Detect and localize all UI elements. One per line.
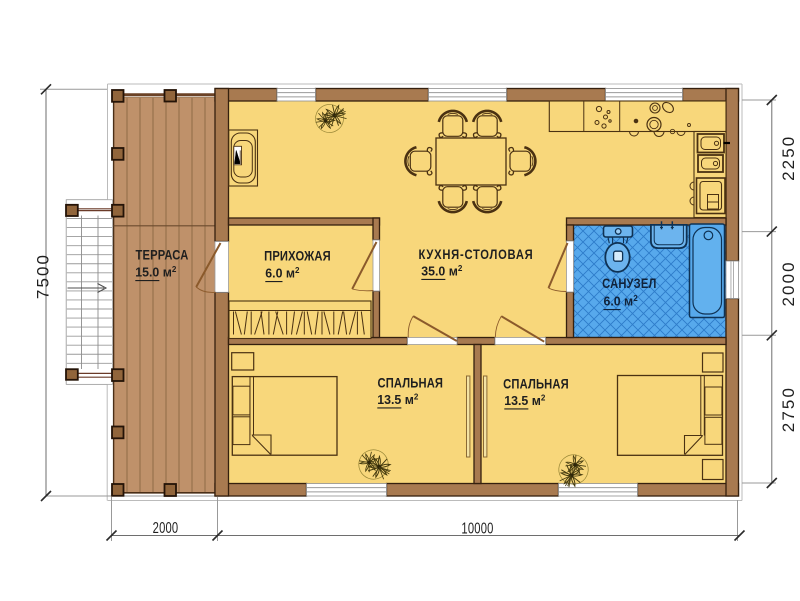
svg-text:13.5 м2: 13.5 м2 <box>377 391 418 407</box>
svg-text:15.0 м2: 15.0 м2 <box>135 264 176 280</box>
svg-text:2000: 2000 <box>779 260 798 306</box>
svg-text:10000: 10000 <box>461 519 493 538</box>
svg-text:СПАЛЬНАЯ: СПАЛЬНАЯ <box>377 375 443 390</box>
svg-text:КУХНЯ-СТОЛОВАЯ: КУХНЯ-СТОЛОВАЯ <box>419 247 534 262</box>
svg-text:2250: 2250 <box>779 135 798 181</box>
svg-text:ТЕРРАСА: ТЕРРАСА <box>135 248 188 263</box>
svg-text:7500: 7500 <box>34 253 53 299</box>
svg-text:13.5 м2: 13.5 м2 <box>504 392 545 408</box>
svg-text:2000: 2000 <box>153 518 179 537</box>
svg-text:САНУЗЕЛ: САНУЗЕЛ <box>602 276 656 291</box>
svg-text:35.0 м2: 35.0 м2 <box>421 263 462 279</box>
svg-text:6.0 м2: 6.0 м2 <box>265 265 300 281</box>
svg-text:2750: 2750 <box>779 386 798 432</box>
svg-text:СПАЛЬНАЯ: СПАЛЬНАЯ <box>503 376 569 391</box>
svg-text:ПРИХОЖАЯ: ПРИХОЖАЯ <box>264 249 331 264</box>
svg-text:6.0 м2: 6.0 м2 <box>604 293 639 309</box>
